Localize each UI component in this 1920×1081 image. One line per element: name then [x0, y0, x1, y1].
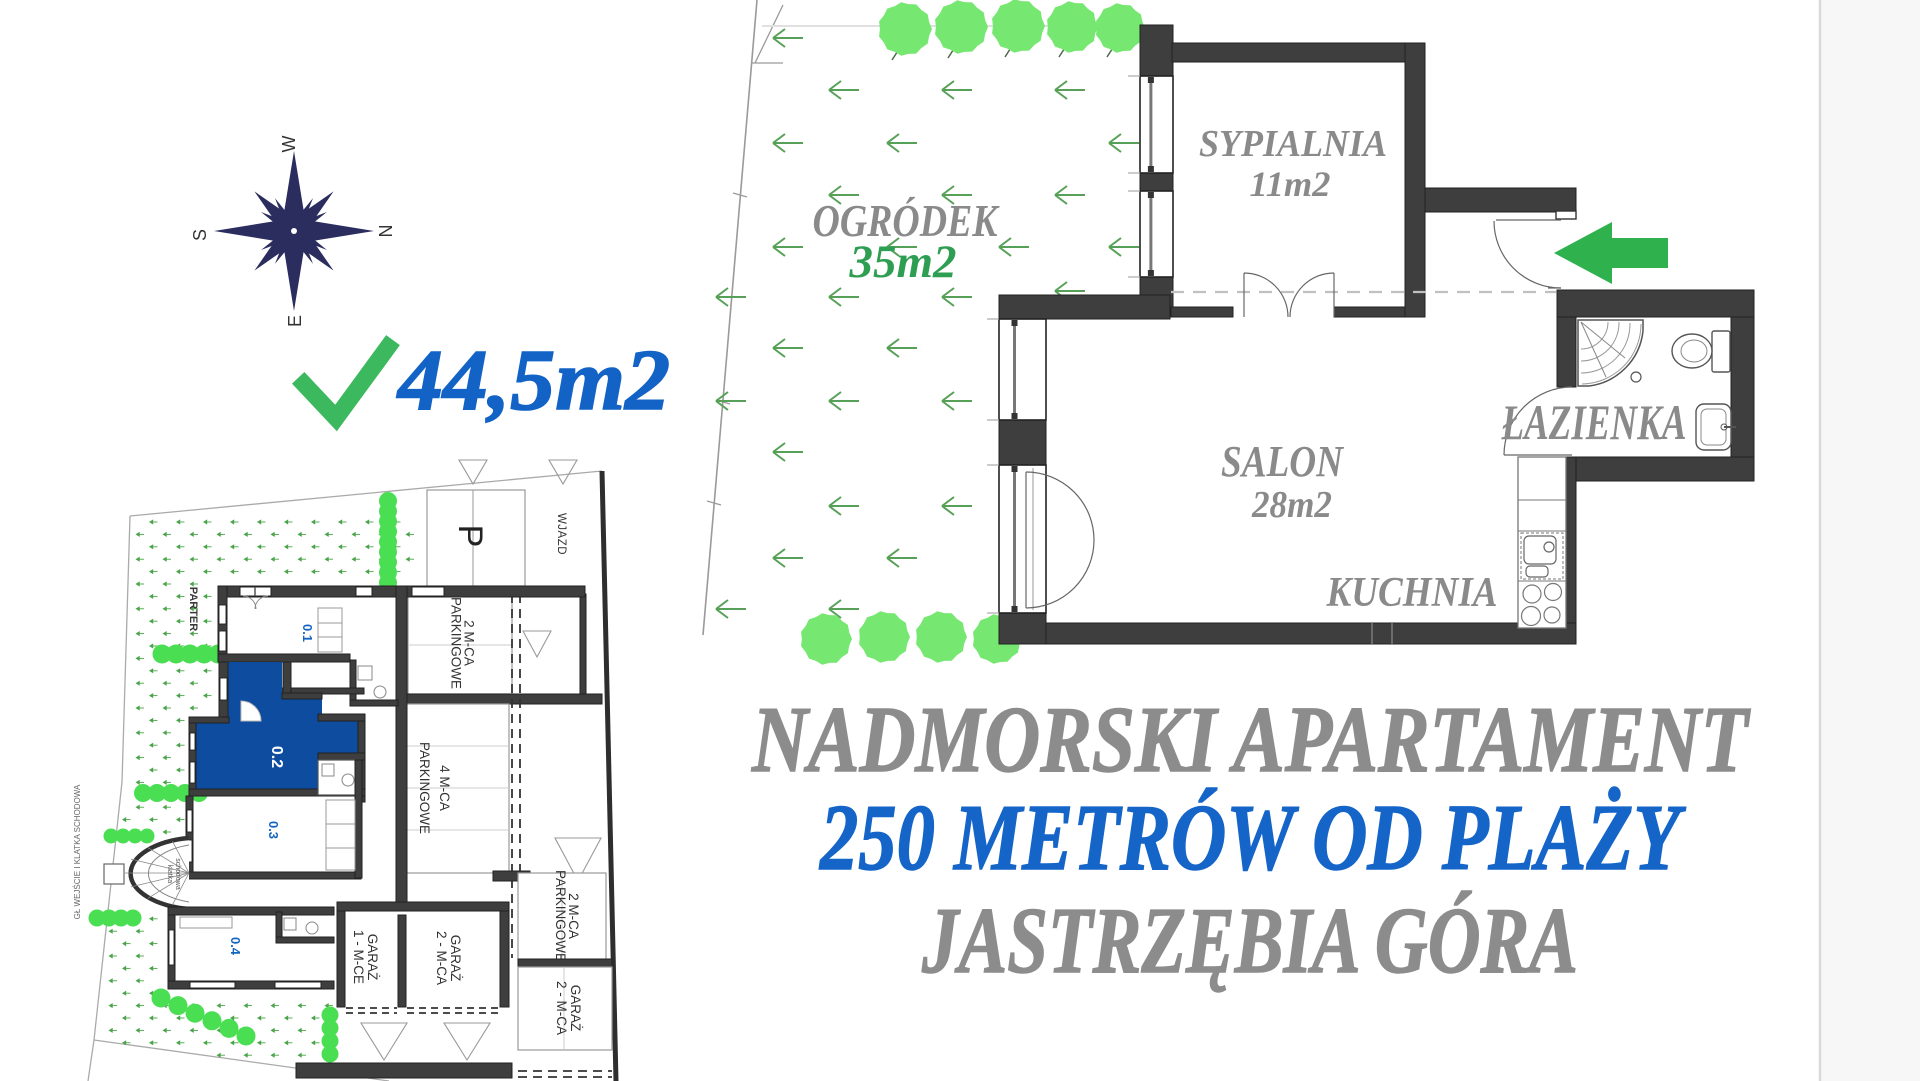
svg-text:44,5m2: 44,5m2 [396, 331, 670, 428]
svg-text:schodowa: schodowa [174, 858, 181, 890]
svg-text:PARTER: PARTER [187, 587, 199, 631]
svg-text:28m2: 28m2 [1251, 484, 1332, 526]
svg-text:P: P [451, 525, 489, 548]
svg-text:S: S [190, 229, 210, 241]
svg-text:WJAZD: WJAZD [555, 513, 567, 555]
svg-text:0.3: 0.3 [266, 821, 281, 839]
svg-text:1 - M-CE: 1 - M-CE [351, 930, 366, 984]
svg-text:SALON: SALON [1221, 437, 1345, 486]
svg-text:2 - M-CA: 2 - M-CA [434, 931, 449, 985]
svg-text:PARKINGOWE: PARKINGOWE [553, 870, 568, 962]
svg-text:2 M-CA: 2 M-CA [462, 620, 477, 666]
svg-text:PARKINGOWE: PARKINGOWE [417, 742, 432, 834]
svg-text:klatka: klatka [166, 865, 173, 883]
svg-text:GARAŻ: GARAŻ [365, 934, 380, 981]
svg-text:4 M-CA: 4 M-CA [437, 765, 452, 811]
svg-text:GARAŻ: GARAŻ [568, 985, 583, 1032]
svg-text:11m2: 11m2 [1250, 164, 1331, 204]
svg-text:GŁ WEJŚCIE I KLATKA SCHODOWA: GŁ WEJŚCIE I KLATKA SCHODOWA [73, 784, 82, 919]
svg-text:2 - M-CA: 2 - M-CA [554, 981, 569, 1035]
svg-text:PARKINGOWE: PARKINGOWE [449, 597, 464, 689]
svg-text:0.4: 0.4 [228, 937, 243, 956]
svg-text:0.1: 0.1 [300, 624, 315, 642]
svg-text:NADMORSKI APARTAMENT: NADMORSKI APARTAMENT [751, 688, 1751, 792]
svg-text:0.2: 0.2 [268, 746, 285, 768]
svg-text:35m2: 35m2 [849, 236, 957, 288]
svg-text:SYPIALNIA: SYPIALNIA [1199, 123, 1387, 165]
svg-text:GARAŻ: GARAŻ [448, 935, 463, 982]
svg-text:KUCHNIA: KUCHNIA [1326, 570, 1498, 616]
svg-text:2 M-CA: 2 M-CA [566, 893, 581, 939]
svg-text:N: N [376, 225, 396, 238]
svg-text:JASTRZĘBIA GÓRA: JASTRZĘBIA GÓRA [921, 889, 1578, 993]
svg-text:W: W [279, 136, 299, 153]
svg-text:E: E [285, 315, 305, 327]
svg-text:ŁAZIENKA: ŁAZIENKA [1501, 394, 1687, 450]
svg-text:250 METRÓW OD PLAŻY: 250 METRÓW OD PLAŻY [818, 786, 1686, 890]
